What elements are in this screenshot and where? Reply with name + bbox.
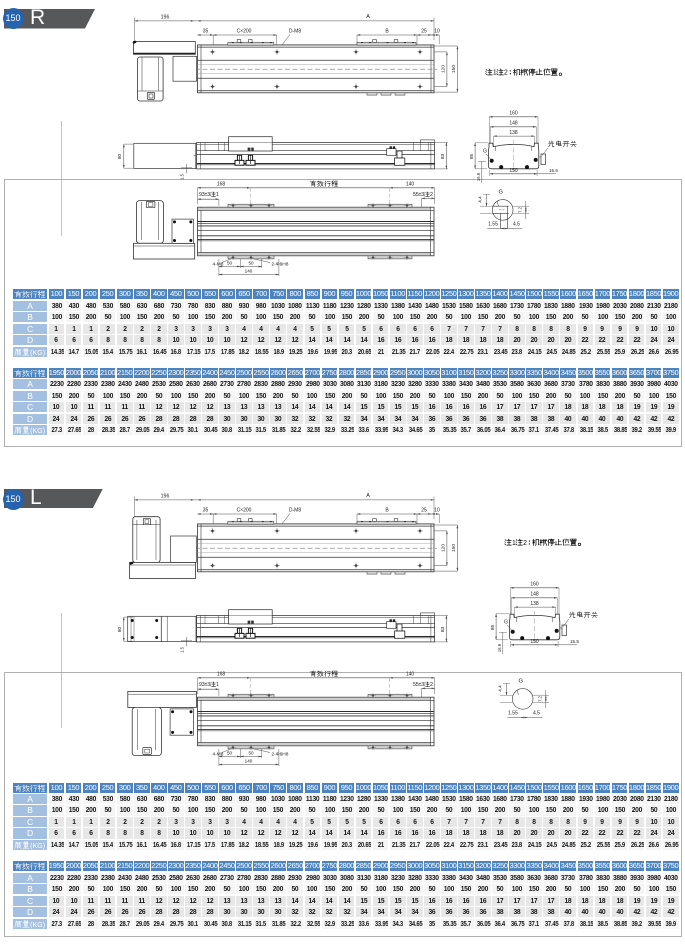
svg-text:148: 148	[530, 591, 539, 597]
svg-text:16.9: 16.9	[476, 172, 481, 181]
svg-text:2: 2	[523, 540, 527, 547]
svg-text:(KG): (KG)	[30, 350, 45, 357]
svg-text:140: 140	[406, 182, 415, 188]
svg-text:A: A	[366, 493, 370, 499]
svg-text:160: 160	[509, 110, 518, 116]
svg-text:168: 168	[217, 672, 226, 678]
svg-text:85: 85	[469, 154, 475, 160]
svg-text:168: 168	[217, 182, 226, 188]
svg-text:138: 138	[509, 130, 518, 136]
svg-text:2: 2	[430, 192, 433, 198]
svg-text:2: 2	[504, 70, 508, 77]
svg-text:1.55: 1.55	[488, 222, 498, 228]
svg-text:C×200: C×200	[237, 507, 252, 513]
svg-text:83: 83	[440, 154, 446, 160]
svg-text:160: 160	[530, 581, 539, 587]
svg-text:83: 83	[440, 627, 446, 633]
svg-text:2-Φ6H8: 2-Φ6H8	[272, 261, 289, 267]
svg-text:(KG): (KG)	[30, 921, 45, 928]
svg-text:7.2: 7.2	[537, 695, 542, 701]
svg-text:1.55: 1.55	[508, 711, 518, 717]
svg-text:G: G	[518, 679, 523, 685]
svg-text:1.5: 1.5	[180, 173, 185, 179]
svg-text:10: 10	[434, 28, 440, 34]
svg-text:B: B	[385, 28, 389, 34]
svg-text:120: 120	[441, 65, 447, 73]
svg-text:25: 25	[421, 507, 427, 513]
svg-text:85: 85	[490, 625, 496, 631]
svg-text:120: 120	[441, 544, 447, 552]
svg-text:50: 50	[227, 750, 233, 755]
svg-text:138: 138	[530, 601, 539, 607]
svg-text:35: 35	[203, 507, 209, 513]
svg-text:196: 196	[161, 494, 170, 500]
svg-text:55±3: 55±3	[413, 192, 424, 198]
svg-text:1: 1	[216, 192, 219, 198]
svg-text:7.2: 7.2	[517, 206, 522, 212]
svg-text:50: 50	[227, 260, 233, 265]
svg-text:1.5: 1.5	[180, 646, 185, 652]
svg-text:B: B	[385, 507, 389, 513]
svg-text:140: 140	[245, 268, 253, 273]
svg-text:93±3: 93±3	[199, 192, 210, 198]
svg-text:4.4: 4.4	[498, 685, 503, 692]
svg-text:150: 150	[451, 65, 457, 73]
svg-text:(KG): (KG)	[30, 428, 45, 435]
svg-text:50: 50	[248, 750, 254, 755]
svg-text:10: 10	[434, 507, 440, 513]
svg-text:50: 50	[248, 260, 254, 265]
svg-text:2: 2	[430, 682, 433, 688]
svg-text:80: 80	[117, 154, 123, 160]
svg-text:1: 1	[493, 70, 497, 77]
svg-text:1: 1	[512, 540, 516, 547]
svg-text:150: 150	[509, 168, 518, 174]
svg-text:196: 196	[161, 15, 170, 21]
svg-text:4.4: 4.4	[478, 196, 483, 203]
svg-text:A: A	[366, 14, 370, 20]
svg-text:150: 150	[451, 544, 457, 552]
svg-text:16.9: 16.9	[497, 643, 502, 652]
svg-text:93±3: 93±3	[199, 682, 210, 688]
svg-text:55±3: 55±3	[413, 682, 424, 688]
svg-text:80: 80	[117, 627, 123, 633]
svg-text:4.5: 4.5	[533, 711, 540, 717]
svg-text:4.5: 4.5	[513, 222, 520, 228]
svg-text:G: G	[483, 149, 487, 155]
svg-text:(KG): (KG)	[30, 843, 45, 850]
svg-text:140: 140	[406, 672, 415, 678]
svg-text:15.5: 15.5	[570, 639, 579, 644]
svg-text:D-M8: D-M8	[289, 28, 301, 34]
svg-text:35: 35	[203, 28, 209, 34]
svg-text:140: 140	[245, 758, 253, 763]
svg-text:15.5: 15.5	[549, 168, 558, 173]
svg-text:150: 150	[530, 639, 539, 645]
svg-text:148: 148	[509, 120, 518, 126]
svg-text:1: 1	[216, 682, 219, 688]
svg-text:G: G	[498, 190, 503, 196]
svg-text:D-M8: D-M8	[289, 507, 301, 513]
svg-text:25: 25	[421, 28, 427, 34]
svg-text:G: G	[504, 620, 508, 626]
svg-text:C×200: C×200	[237, 28, 252, 34]
svg-text:2-Φ6H8: 2-Φ6H8	[272, 751, 289, 757]
